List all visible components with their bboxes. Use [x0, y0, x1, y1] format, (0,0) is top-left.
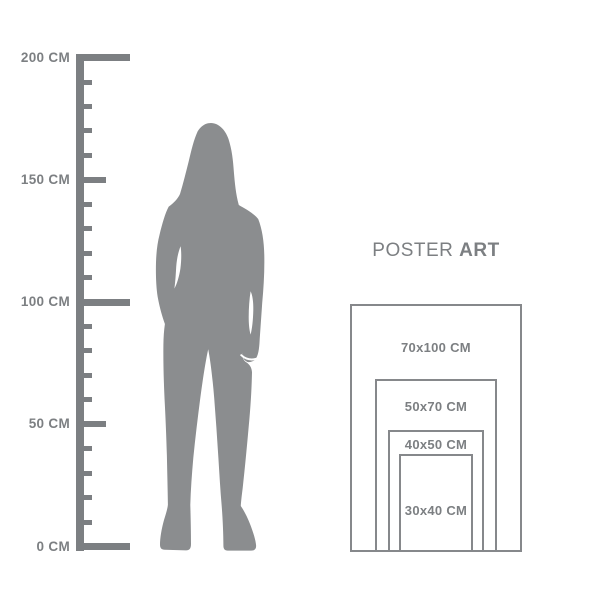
poster-size-guide: 200 CM 150 CM 100 CM 50 CM 0 CM POSTER A…	[0, 0, 600, 600]
poster-size-label-70x100: 70x100 CM	[352, 340, 520, 356]
poster-heading-bold: ART	[459, 240, 500, 261]
poster-size-label-30x40: 30x40 CM	[401, 503, 471, 519]
poster-heading: POSTER ART	[350, 240, 522, 262]
poster-size-label-40x50: 40x50 CM	[390, 437, 482, 453]
poster-heading-regular: POSTER	[372, 240, 453, 261]
poster-size-label-50x70: 50x70 CM	[377, 399, 495, 415]
silhouette-body	[156, 123, 264, 551]
poster-size-rect-30x40: 30x40 CM	[399, 454, 473, 552]
